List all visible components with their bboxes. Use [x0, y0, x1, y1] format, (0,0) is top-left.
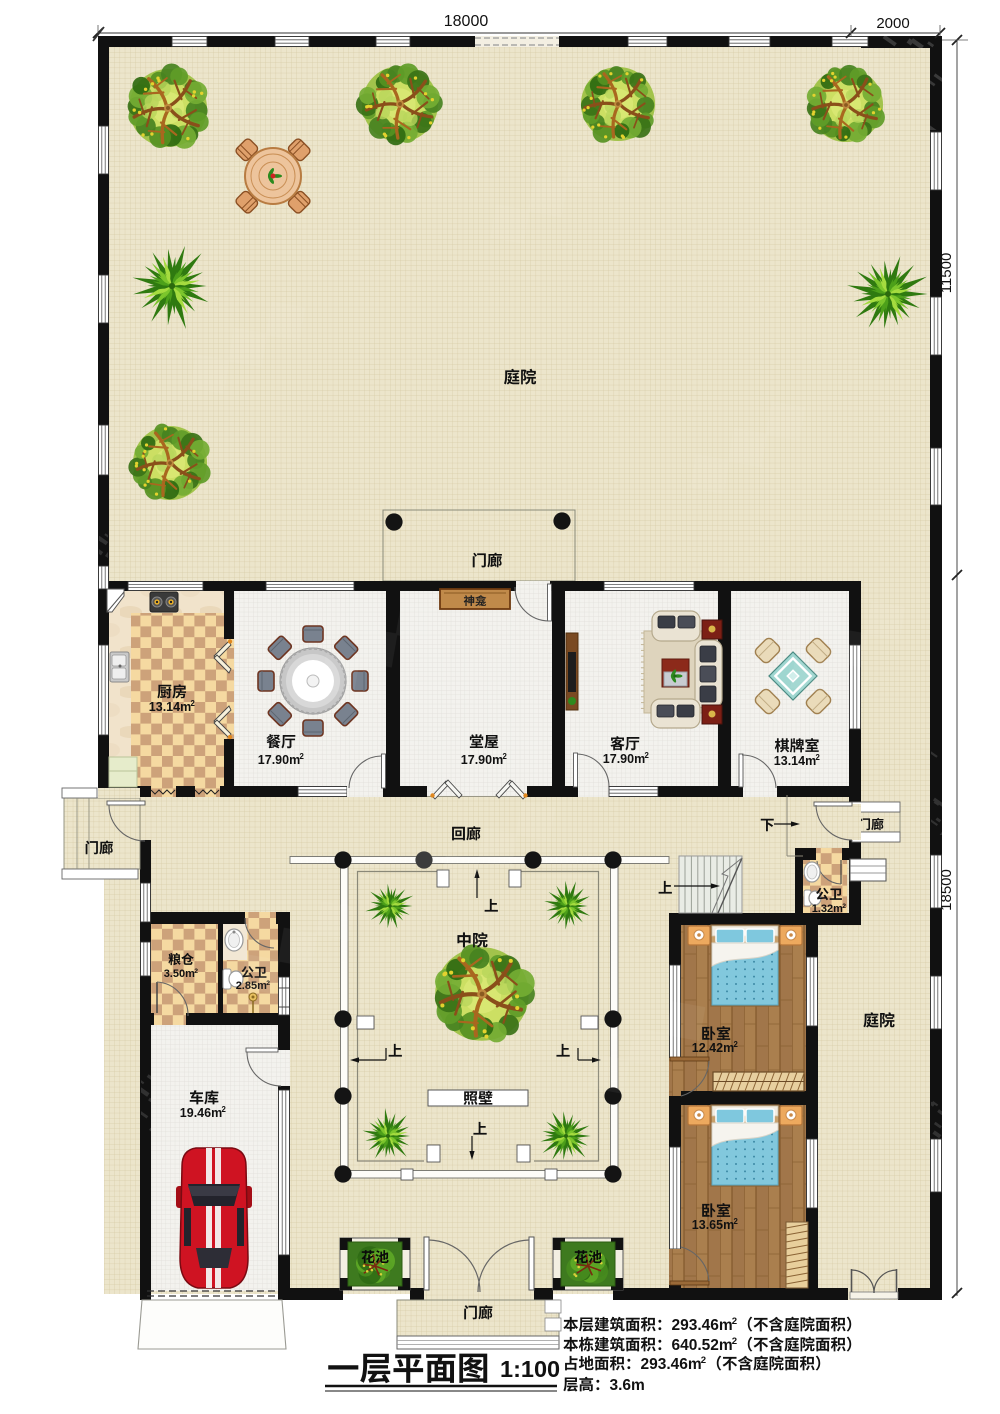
svg-text:2: 2: [701, 1355, 706, 1366]
svg-text:2: 2: [645, 751, 650, 760]
svg-text:2000: 2000: [876, 15, 909, 32]
svg-text:18000: 18000: [444, 13, 489, 30]
svg-text:2: 2: [222, 1105, 227, 1114]
svg-text:2: 2: [842, 903, 846, 910]
svg-text:2: 2: [300, 752, 305, 761]
svg-text:293.46m: 293.46m: [641, 1356, 702, 1373]
svg-text:17.90m: 17.90m: [603, 752, 645, 766]
svg-text:1:100: 1:100: [500, 1356, 560, 1382]
svg-text:18500: 18500: [938, 869, 955, 911]
svg-text:17.90m: 17.90m: [461, 753, 503, 767]
svg-text:2: 2: [734, 1217, 739, 1226]
svg-text:640.52m: 640.52m: [672, 1337, 733, 1354]
svg-text:3.6m: 3.6m: [610, 1377, 645, 1394]
svg-text:2: 2: [816, 753, 821, 762]
svg-text:2: 2: [191, 699, 196, 708]
svg-text:3.50m: 3.50m: [164, 968, 195, 980]
svg-text:293.46m: 293.46m: [672, 1317, 733, 1334]
svg-text:13.14m: 13.14m: [774, 754, 816, 768]
svg-text:2: 2: [194, 968, 198, 975]
svg-text:13.65m: 13.65m: [692, 1218, 734, 1232]
svg-text:2: 2: [732, 1336, 737, 1347]
svg-text:2: 2: [503, 752, 508, 761]
svg-text:2: 2: [734, 1040, 739, 1049]
svg-text:1.32m: 1.32m: [812, 903, 843, 915]
svg-text:2: 2: [732, 1316, 737, 1327]
svg-text:19.46m: 19.46m: [180, 1106, 222, 1120]
svg-text:17.90m: 17.90m: [258, 753, 300, 767]
svg-text:11500: 11500: [938, 253, 955, 294]
svg-text:13.14m: 13.14m: [149, 700, 191, 714]
